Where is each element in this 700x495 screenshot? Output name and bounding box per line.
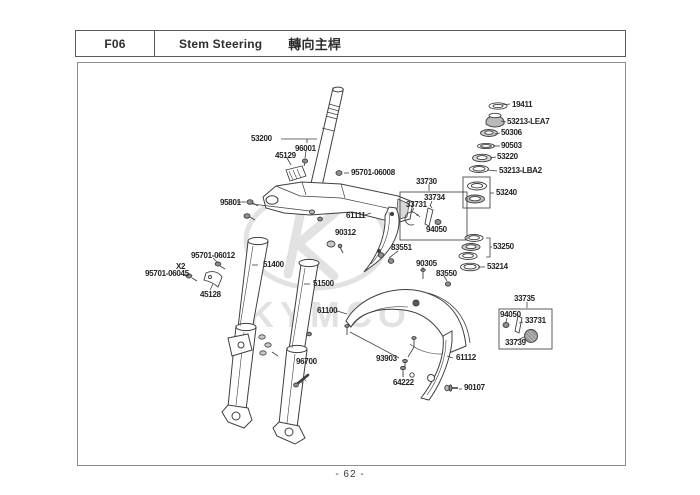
- part-label-61112: 61112: [456, 354, 476, 362]
- section-code: F06: [104, 37, 125, 51]
- part-label-93903: 93903: [376, 355, 397, 363]
- part-label-95701-06045: 95701-06045: [145, 270, 189, 278]
- catalog-page: { "header": { "code": "F06", "title_en":…: [0, 0, 700, 495]
- part-label-90312: 90312: [335, 229, 356, 237]
- part-label-53213-lea7: 53213-LEA7: [507, 118, 549, 126]
- page-number: - 62 -: [0, 469, 700, 480]
- part-label-95801: 95801: [220, 199, 241, 207]
- part-label-95701-06008: 95701-06008: [351, 169, 395, 177]
- part-label-90107: 90107: [464, 384, 485, 392]
- part-label-96001: 96001: [295, 145, 316, 153]
- part-label-45128: 45128: [200, 291, 221, 299]
- part-label-53214: 53214: [487, 263, 508, 271]
- part-label-53240: 53240: [496, 189, 517, 197]
- header-title-box: Stem Steering 轉向主桿: [154, 30, 626, 57]
- part-label-83550: 83550: [436, 270, 457, 278]
- part-label-61111: 61111: [346, 212, 365, 220]
- section-title-chinese: 轉向主桿: [288, 34, 341, 53]
- part-label-45129: 45129: [275, 152, 296, 160]
- part-label-50306: 50306: [501, 129, 522, 137]
- part-label-64222: 64222: [393, 379, 414, 387]
- part-label-96700: 96700: [296, 358, 317, 366]
- part-label-94050-b: 94050: [500, 311, 521, 319]
- part-label-53200: 53200: [251, 135, 272, 143]
- part-label-51500: 51500: [313, 280, 334, 288]
- part-label-53250: 53250: [493, 243, 514, 251]
- part-label-51400: 51400: [263, 261, 284, 269]
- header-section-code-box: F06: [75, 30, 155, 57]
- part-label-90305: 90305: [416, 260, 437, 268]
- part-label-33739: 33739: [505, 339, 526, 347]
- part-label-33731-a: 33731: [406, 201, 427, 209]
- part-label-94050-a: 94050: [426, 226, 447, 234]
- section-title-english: Stem Steering: [179, 37, 262, 51]
- part-label-33731-b: 33731: [525, 317, 546, 325]
- part-label-83551: 83551: [391, 244, 412, 252]
- part-label-61100: 61100: [317, 307, 337, 315]
- part-label-33730: 33730: [416, 178, 437, 186]
- part-label-90503: 90503: [501, 142, 522, 150]
- part-label-95701-06012: 95701-06012: [191, 252, 235, 260]
- part-label-33734: 33734: [424, 194, 445, 202]
- part-label-53213-lba2: 53213-LBA2: [499, 167, 542, 175]
- part-label-19411: 19411: [512, 101, 532, 109]
- part-label-53220: 53220: [497, 153, 518, 161]
- part-label-33735: 33735: [514, 295, 535, 303]
